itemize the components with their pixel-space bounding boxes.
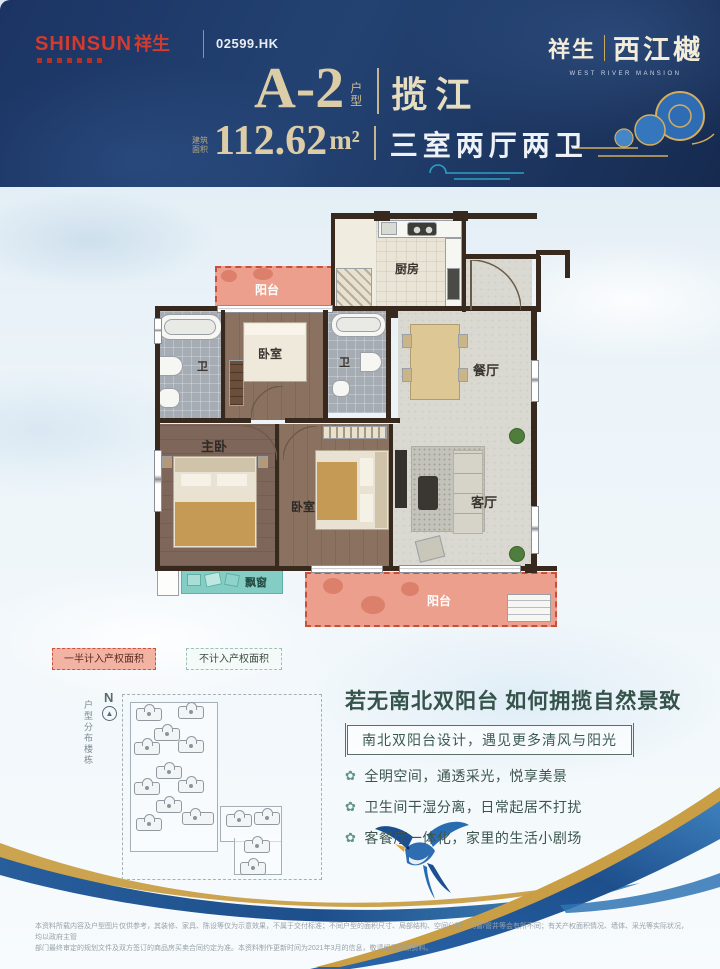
room-label-bedroom-north: 卧室 [258, 345, 282, 362]
bed-master-pillow [181, 474, 211, 486]
dining-table [410, 324, 460, 400]
room-label-kitchen: 厨房 [395, 260, 419, 277]
flower-decor [253, 268, 273, 280]
bath-sink [158, 388, 180, 408]
nightstand [162, 456, 172, 468]
brand-logo-cn: 祥生 [134, 30, 170, 56]
floor-plan: 阳台 厨房 卫 卧室 卫 餐厅 主卧 卧室 [155, 210, 575, 640]
disclaimer-line-2: 部门最终审定的规划文件及双方签订的商品房买卖合同约定为准。本资料制作更新时间为2… [35, 943, 693, 954]
building-footprint [136, 708, 162, 721]
bedroom2-door-arc [283, 426, 317, 460]
room-label-bedroom-second: 卧室 [291, 498, 315, 515]
title-divider [377, 68, 379, 114]
legend-not-counted: 不计入产权面积 [186, 648, 282, 670]
flower-bullet-icon: ✿ [345, 768, 356, 784]
building-footprint [178, 706, 204, 719]
bed-pillows [245, 324, 305, 335]
building-footprint [178, 740, 204, 753]
building-footprint [136, 818, 162, 831]
area-value: 112.62 [214, 119, 327, 163]
project-logo: 祥生 西江樾 WEST RIVER MANSION [538, 28, 713, 77]
kitchen-appliance [447, 268, 460, 300]
bed-second-pillow [360, 458, 373, 486]
bed-master-pillow [217, 474, 247, 486]
area-prefix: 建筑面积 [192, 136, 210, 154]
tv-unit [395, 450, 407, 508]
flower-bullet-icon: ✿ [345, 830, 356, 846]
highlight-bullet-text: 客餐厅一体化，家里的生活小剧场 [364, 828, 582, 848]
unit-title: A-2 户型 揽江 [254, 58, 479, 118]
area-divider [374, 126, 376, 160]
flower-decor [361, 596, 385, 614]
unit-code: A-2 [254, 59, 344, 117]
north-label: N [104, 690, 113, 705]
ac-platform [157, 570, 179, 596]
toilet [159, 356, 183, 376]
toilet-2 [360, 352, 382, 372]
room-label-bay-window: 飘窗 [245, 574, 267, 590]
unit-series: 揽江 [391, 66, 479, 118]
ac-unit [507, 594, 551, 622]
bed-master-blanket [175, 502, 255, 546]
bath-sink-2 [332, 380, 350, 397]
room-label-bath-mid: 卫 [339, 354, 350, 370]
project-name-divider [604, 35, 605, 61]
building-footprint [240, 862, 266, 875]
building-footprint [244, 840, 270, 853]
disclaimer-line-1: 本资料所载内容及户型图片仅供参考，其装修、家具、陈设等仅为示意效果，不属于交付标… [35, 921, 693, 943]
plant [509, 546, 525, 562]
area-unit: m² [329, 125, 360, 156]
highlight-bullet: ✿ 卫生间干湿分离，日常起居不打扰 [345, 797, 685, 817]
bay-window-decor [187, 574, 201, 586]
project-name-left: 祥生 [548, 32, 596, 64]
highlight-bullet-text: 全明空间，通透采光，悦享美景 [364, 766, 567, 786]
kitchen-sink [381, 222, 397, 235]
dining-chair [458, 368, 468, 382]
flower-decor [221, 270, 237, 282]
highlights-subtitle: 南北双阳台设计，遇见更多清风与阳光 [347, 725, 632, 755]
building-footprint [156, 766, 182, 779]
flower-decor [401, 582, 419, 596]
building-footprint [134, 742, 160, 755]
building-footprint [134, 782, 160, 795]
room-label-living: 客厅 [471, 492, 497, 511]
line-cloud-icon [420, 158, 530, 184]
project-name-right: 西江樾 [613, 28, 703, 67]
building-footprint [226, 814, 252, 827]
wardrobe [336, 268, 372, 310]
dining-chair [402, 334, 412, 348]
highlight-bullet-text: 卫生间干湿分离，日常起居不打扰 [364, 797, 582, 817]
highlights-block: 若无南北双阳台 如何拥揽自然景致 南北双阳台设计，遇见更多清风与阳光 ✿ 全明空… [345, 685, 685, 848]
bed-second-blanket [317, 462, 357, 520]
entry-door-arc [469, 260, 521, 312]
site-plan-side-label: 户型分布楼栋 [84, 700, 95, 766]
highlight-bullet: ✿ 全明空间，通透采光，悦享美景 [345, 766, 685, 786]
dining-chair [458, 334, 468, 348]
site-plan: 户型分布楼栋 N ▲ [82, 690, 324, 895]
header-divider [203, 30, 204, 58]
plant [509, 428, 525, 444]
stove [407, 222, 437, 236]
gold-cloud-icon [572, 86, 717, 168]
master-door-arc [243, 426, 277, 460]
project-name-en: WEST RIVER MANSION [538, 71, 713, 77]
highlight-bullet: ✿ 客餐厅一体化，家里的生活小剧场 [345, 828, 685, 848]
brand-logo-en: SHINSUN [35, 33, 132, 56]
bay-window-decor [224, 573, 240, 587]
bathtub-inner [164, 319, 216, 335]
wardrobe-2 [323, 426, 387, 439]
compass-icon: ▲ [102, 706, 117, 721]
bed-second-pillow [360, 494, 373, 522]
room-label-bath-left: 卫 [197, 358, 208, 374]
flower-bullet-icon: ✿ [345, 799, 356, 815]
room-label-dining: 餐厅 [473, 360, 499, 379]
room-label-balcony-north: 阳台 [255, 281, 279, 298]
disclaimer-text: 本资料所载内容及户型图片仅供参考，其装修、家具、陈设等仅为示意效果，不属于交付标… [35, 921, 693, 954]
coffee-table [418, 476, 438, 510]
brand-logo: SHINSUN 祥生 [35, 30, 170, 56]
legend-half-counted: 一半计入产权面积 [52, 648, 156, 670]
stock-code: 02599.HK [216, 36, 279, 51]
brand-slogan-dots [37, 58, 102, 63]
building-footprint [182, 812, 214, 825]
cabinet [229, 360, 244, 406]
building-footprint [178, 780, 204, 793]
dining-chair [402, 368, 412, 382]
building-footprint [254, 812, 280, 825]
bed-master-headboard [175, 458, 255, 472]
room-label-master: 主卧 [201, 436, 227, 455]
building-footprint [154, 728, 180, 741]
header-banner: SHINSUN 祥生 02599.HK 祥生 西江樾 WEST RIVER MA… [0, 0, 720, 187]
room-label-balcony-south: 阳台 [427, 592, 451, 609]
flower-decor [323, 578, 343, 594]
bathtub-2-inner [336, 317, 381, 332]
unit-type-label: 户型 [350, 82, 365, 108]
bed-second-headboard [375, 452, 387, 528]
bedroom-door-arc [251, 386, 283, 418]
highlights-title: 若无南北双阳台 如何拥揽自然景致 [345, 685, 685, 715]
building-footprint [156, 800, 182, 813]
